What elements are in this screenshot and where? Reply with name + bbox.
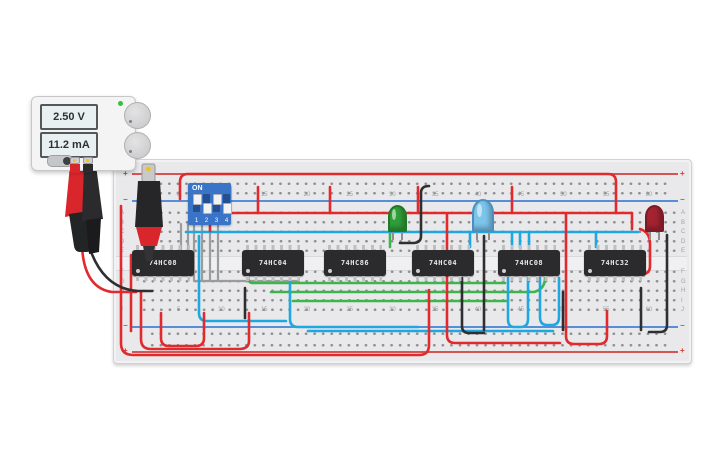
board-label: A bbox=[681, 210, 685, 216]
ic-pins-bottom bbox=[246, 276, 300, 281]
negative-terminal[interactable] bbox=[83, 157, 93, 173]
board-label: J bbox=[681, 307, 684, 313]
dip-slider-knob bbox=[223, 203, 232, 214]
led-legs bbox=[649, 232, 660, 240]
terminal-body bbox=[83, 164, 93, 173]
board-label: H bbox=[120, 288, 124, 294]
current-knob[interactable] bbox=[124, 132, 151, 159]
ic-pins-top bbox=[502, 245, 556, 250]
ic-chip-74hc32-5[interactable]: 74HC32 bbox=[584, 250, 646, 276]
current-display: 11.2 mA bbox=[40, 132, 98, 158]
board-label: 5 bbox=[177, 192, 180, 198]
board-label: 30 bbox=[389, 307, 396, 313]
dip-pin-number: 2 bbox=[203, 218, 210, 224]
knob-marker bbox=[129, 120, 132, 123]
dip-pin-number: 3 bbox=[213, 218, 220, 224]
led-bulb bbox=[388, 205, 407, 232]
board-label: G bbox=[120, 279, 125, 285]
board-label: G bbox=[681, 279, 686, 285]
dip-switch[interactable]: ON 1234 bbox=[188, 183, 231, 225]
board-label: 35 bbox=[432, 192, 439, 198]
board-label: 45 bbox=[517, 307, 524, 313]
circuit-canvas: 5510101515202025253030353540404545505055… bbox=[0, 0, 725, 453]
dip-slider-2[interactable] bbox=[203, 194, 210, 212]
board-label: 5 bbox=[177, 307, 180, 313]
ic-label: 74HC32 bbox=[584, 259, 646, 267]
board-label: 55 bbox=[603, 192, 610, 198]
dip-pin-number: 1 bbox=[193, 218, 200, 224]
ic-pins-top bbox=[588, 245, 642, 250]
dip-pin-number: 4 bbox=[223, 218, 230, 224]
ic-pins-bottom bbox=[502, 276, 556, 281]
dip-on-label: ON bbox=[192, 185, 203, 192]
red-led[interactable] bbox=[645, 205, 664, 232]
green-led[interactable] bbox=[388, 205, 407, 232]
board-label: A bbox=[120, 210, 124, 216]
dip-slider-knob bbox=[213, 194, 222, 205]
board-label: 40 bbox=[475, 307, 482, 313]
board-label: H bbox=[681, 288, 685, 294]
board-label: B bbox=[120, 220, 124, 226]
rail-symbol: + bbox=[680, 170, 685, 178]
ic-label: 74HC04 bbox=[242, 259, 304, 267]
ic-chip-74hc04-1[interactable]: 74HC04 bbox=[242, 250, 304, 276]
board-label: 45 bbox=[517, 192, 524, 198]
bottom-bus-holes bbox=[148, 328, 672, 351]
dip-slider-knob bbox=[193, 194, 202, 205]
board-label: J bbox=[120, 307, 123, 313]
positive-terminal[interactable] bbox=[70, 157, 80, 173]
board-label: B bbox=[681, 220, 685, 226]
board-label: 60 bbox=[646, 192, 653, 198]
board-label: I bbox=[681, 298, 683, 304]
led-legs bbox=[392, 232, 403, 240]
board-label: C bbox=[120, 229, 124, 235]
knob-marker bbox=[129, 150, 132, 153]
ic-label: 74HC86 bbox=[324, 259, 386, 267]
led-bulb bbox=[472, 199, 494, 232]
board-label: 15 bbox=[261, 307, 268, 313]
voltage-knob[interactable] bbox=[124, 102, 151, 129]
board-label: 60 bbox=[646, 307, 653, 313]
alligator-clip-black[interactable] bbox=[82, 165, 103, 254]
top-positive-rail-line bbox=[132, 173, 678, 175]
ic-chip-74hc86-2[interactable]: 74HC86 bbox=[324, 250, 386, 276]
board-label: D bbox=[120, 239, 124, 245]
ic-pin1-dot bbox=[502, 269, 506, 273]
board-label: 20 bbox=[304, 192, 311, 198]
board-label: 40 bbox=[475, 192, 482, 198]
dip-slider-4[interactable] bbox=[223, 194, 230, 212]
board-label: 35 bbox=[432, 307, 439, 313]
ic-label: 74HC08 bbox=[132, 259, 194, 267]
board-label: 30 bbox=[389, 192, 396, 198]
led-bulb bbox=[645, 205, 664, 232]
ic-pin1-dot bbox=[136, 269, 140, 273]
terminal-dot bbox=[73, 159, 76, 162]
rail-symbol: − bbox=[123, 196, 128, 204]
board-label: I bbox=[120, 298, 122, 304]
ic-pins-bottom bbox=[416, 276, 470, 281]
alligator-clip-red[interactable] bbox=[65, 165, 93, 252]
ic-pins-bottom bbox=[588, 276, 642, 281]
ic-label: 74HC08 bbox=[498, 259, 560, 267]
power-indicator-led bbox=[118, 101, 123, 106]
ic-pin1-dot bbox=[416, 269, 420, 273]
ic-label: 74HC04 bbox=[412, 259, 474, 267]
board-label: E bbox=[120, 248, 124, 254]
dip-slider-3[interactable] bbox=[213, 194, 220, 212]
ic-pins-bottom bbox=[328, 276, 382, 281]
board-label: 25 bbox=[346, 307, 353, 313]
ic-pins-top bbox=[136, 245, 190, 250]
dip-slider-knob bbox=[203, 203, 212, 214]
led-legs bbox=[476, 232, 490, 240]
voltage-display: 2.50 V bbox=[40, 104, 98, 130]
rail-symbol: − bbox=[680, 322, 685, 330]
bottom-positive-rail-line bbox=[132, 351, 678, 353]
board-label: 10 bbox=[218, 307, 225, 313]
rail-symbol: − bbox=[123, 322, 128, 330]
board-label: 50 bbox=[560, 192, 567, 198]
board-label: F bbox=[120, 269, 124, 275]
rail-symbol: + bbox=[123, 170, 128, 178]
led-highlight bbox=[477, 204, 482, 217]
ic-pin1-dot bbox=[588, 269, 592, 273]
ic-pin1-dot bbox=[246, 269, 250, 273]
board-label: 15 bbox=[261, 192, 268, 198]
power-supply[interactable]: 2.50 V 11.2 mA bbox=[31, 96, 136, 171]
ic-pin1-dot bbox=[328, 269, 332, 273]
board-label: 25 bbox=[346, 192, 353, 198]
ic-pins-bottom bbox=[136, 276, 190, 281]
board-label: 55 bbox=[603, 307, 610, 313]
ic-chip-74hc08-4[interactable]: 74HC08 bbox=[498, 250, 560, 276]
board-label: E bbox=[681, 248, 685, 254]
terminal-body bbox=[70, 164, 80, 173]
board-label: F bbox=[681, 269, 685, 275]
rail-symbol: + bbox=[680, 347, 685, 355]
ic-pins-top bbox=[328, 245, 382, 250]
terminal-dot bbox=[86, 159, 89, 162]
dip-slider-1[interactable] bbox=[193, 194, 200, 212]
board-label: C bbox=[681, 229, 685, 235]
blue-led[interactable] bbox=[472, 199, 494, 232]
ic-chip-74hc08-0[interactable]: 74HC08 bbox=[132, 250, 194, 276]
board-label: 50 bbox=[560, 307, 567, 313]
rail-symbol: − bbox=[680, 196, 685, 204]
ic-pins-top bbox=[246, 245, 300, 250]
rail-symbol: + bbox=[123, 347, 128, 355]
ic-pins-top bbox=[416, 245, 470, 250]
ic-chip-74hc04-3[interactable]: 74HC04 bbox=[412, 250, 474, 276]
board-label: D bbox=[681, 239, 685, 245]
board-label: 20 bbox=[304, 307, 311, 313]
